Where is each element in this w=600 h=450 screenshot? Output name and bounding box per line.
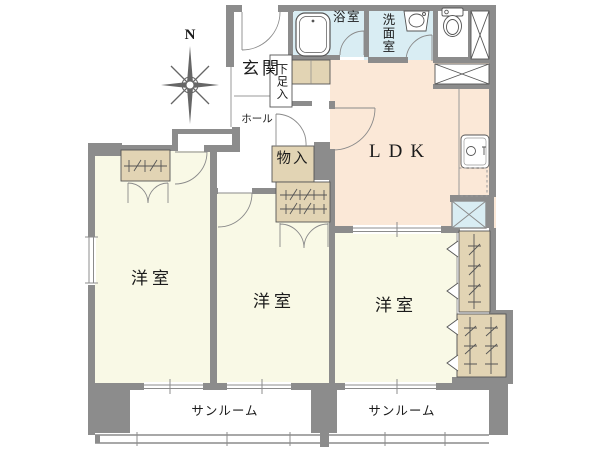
room-label-sunroom-right: サンルーム [360, 405, 444, 419]
closet-bedroom-right-lower [457, 314, 506, 377]
bedroom-left-floor [95, 151, 210, 383]
bathtub-icon [296, 13, 330, 56]
washing-machine-space-icon [452, 201, 486, 228]
washbasin-icon [404, 11, 429, 31]
shoe-cabinet-box [292, 60, 330, 84]
kitchen-sink-icon [461, 135, 489, 168]
room-label-bedroom-right: 洋室 [365, 297, 427, 316]
room-label-ldk: LDK [361, 142, 431, 163]
sunroom-window-band [95, 432, 489, 446]
closet-bedroom-right-upper [459, 231, 490, 312]
closet-bedroom-left [121, 150, 170, 181]
x-closet-hall [435, 64, 489, 84]
room-label-sunroom-left: サンルーム [183, 405, 267, 419]
compass-north-label: N [179, 27, 201, 44]
floor-plan: N 玄関 下足入 浴室 洗面室 ホール 物入 LDK 洋室 洋室 洋室 サンルー… [0, 0, 600, 450]
room-label-washroom: 洗面室 [377, 6, 396, 60]
toilet-icon [442, 8, 463, 37]
x-closet-top-right [471, 11, 489, 59]
compass-rose-icon [161, 46, 219, 124]
room-label-hall: ホール [239, 114, 275, 126]
room-label-bath: 浴室 [329, 11, 365, 25]
room-label-storage: 物入 [270, 152, 316, 168]
floor-plan-drawing [0, 0, 600, 450]
room-label-bedroom-middle: 洋室 [243, 293, 305, 312]
entrance-door [242, 12, 280, 50]
storage-door [276, 114, 306, 146]
room-label-shoe-cabinet: 下足入 [271, 57, 291, 106]
room-label-bedroom-left: 洋室 [121, 270, 183, 289]
closet-hall-bedroom-middle [276, 182, 330, 222]
